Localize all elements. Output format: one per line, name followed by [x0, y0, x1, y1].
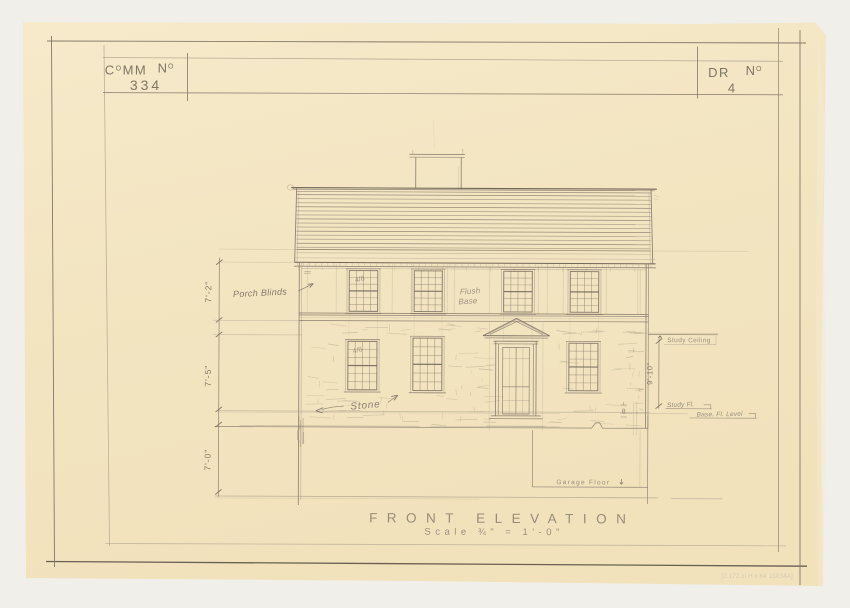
svg-text:9'-10": 9'-10" [645, 362, 654, 385]
svg-text:FRONT ELEVATION: FRONT ELEVATION [369, 510, 635, 526]
svg-text:Scale ¾" = 1'-0": Scale ¾" = 1'-0" [424, 527, 563, 539]
svg-text:8: 8 [622, 408, 626, 415]
svg-text:7'-2": 7'-2" [203, 281, 213, 303]
svg-text:4: 4 [728, 81, 736, 96]
svg-text:7'-5": 7'-5" [203, 365, 213, 387]
svg-text:Garage Floor: Garage Floor [556, 479, 610, 486]
svg-text:[2.172 in H x 64 15034A]: [2.172 in H x 64 15034A] [721, 573, 793, 580]
svg-text:Base: Base [458, 296, 478, 306]
svg-text:Flush: Flush [459, 286, 480, 296]
svg-text:7'-0": 7'-0" [202, 449, 212, 471]
svg-text:Study Fl.: Study Fl. [667, 401, 695, 409]
svg-text:COMM: COMM [105, 63, 148, 78]
svg-text:Base. Fl. Level: Base. Fl. Level [697, 411, 743, 419]
svg-text:DR: DR [708, 65, 730, 80]
svg-text:Study Ceiling: Study Ceiling [667, 337, 711, 344]
svg-text:334: 334 [130, 77, 162, 93]
